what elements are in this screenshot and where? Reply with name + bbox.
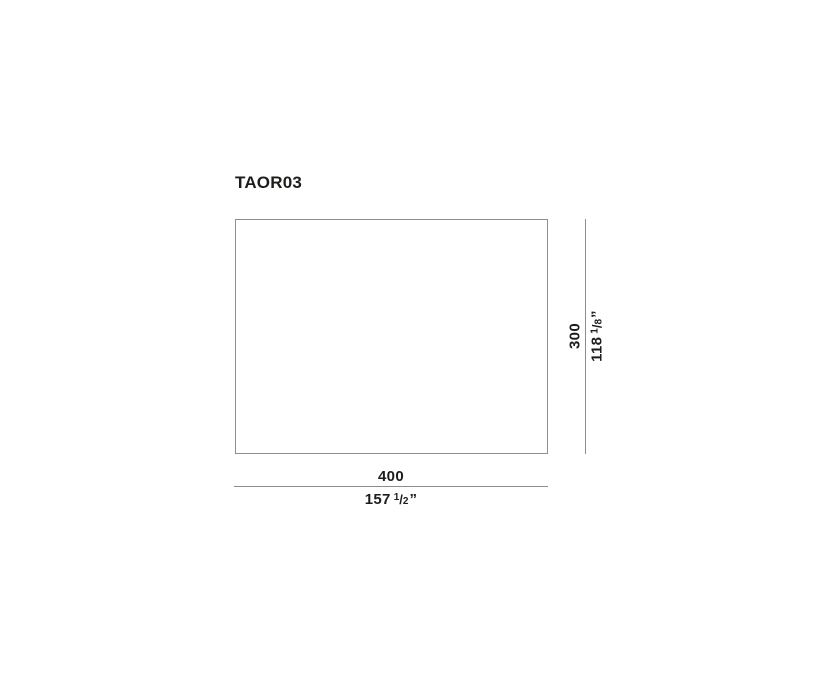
inch-mark: ”: [589, 310, 606, 318]
height-inches-whole: 118: [589, 337, 606, 362]
width-dimension-cm-label: 400: [234, 468, 548, 485]
width-dimension-inches-label: 1571/2”: [234, 489, 548, 510]
product-outline-rect: [235, 219, 548, 454]
fraction-slash: /: [590, 325, 605, 329]
width-dimension-line: [234, 486, 548, 487]
inch-mark: ”: [409, 491, 417, 508]
fraction-denominator: 8: [594, 319, 605, 325]
product-code-title: TAOR03: [235, 173, 302, 193]
height-dimension-cm-label: 300: [567, 219, 585, 454]
height-dimension-inches-label: 1181/8”: [587, 219, 605, 454]
width-inches-whole: 157: [365, 491, 391, 508]
fraction-denominator: 2: [403, 496, 409, 507]
width-inches-fraction: 1/2: [394, 491, 409, 508]
fraction-numerator: 1: [590, 328, 601, 334]
height-inches-fraction: 1/8: [589, 319, 606, 334]
spec-sheet: TAOR03 300 1181/8” 400 1571/2”: [0, 0, 840, 679]
